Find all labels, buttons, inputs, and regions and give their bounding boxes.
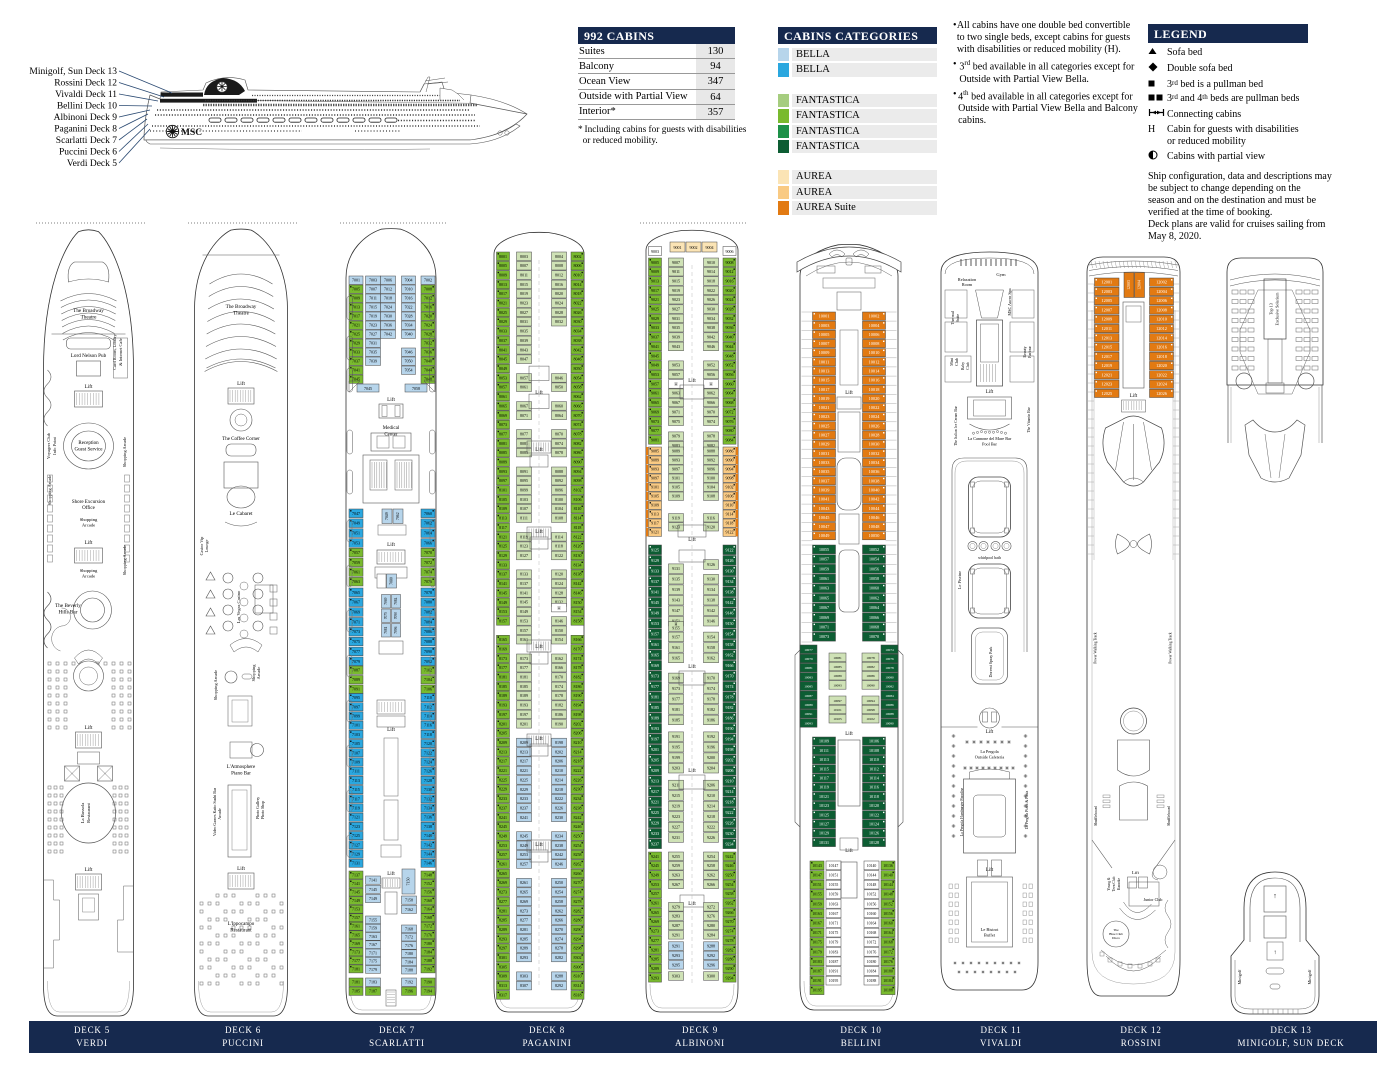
svg-text:10117: 10117 <box>819 776 829 781</box>
svg-text:10050: 10050 <box>869 533 880 538</box>
svg-text:9126: 9126 <box>707 562 715 567</box>
svg-text:9261: 9261 <box>651 901 659 906</box>
svg-text:7119: 7119 <box>352 806 360 811</box>
svg-text:8174: 8174 <box>574 656 582 661</box>
svg-text:10066: 10066 <box>869 615 879 620</box>
svg-text:7179: 7179 <box>369 967 377 972</box>
svg-text:Le Bistrot: Le Bistrot <box>981 927 999 932</box>
svg-text:8269: 8269 <box>499 880 507 885</box>
svg-text:7010: 7010 <box>405 287 413 292</box>
svg-text:9011: 9011 <box>672 269 680 274</box>
svg-text:9241: 9241 <box>651 854 659 859</box>
svg-text:7184: 7184 <box>405 959 413 964</box>
svg-text:Minigolf: Minigolf <box>1307 969 1312 984</box>
svg-text:7088: 7088 <box>424 639 432 644</box>
svg-text:7013: 7013 <box>352 305 360 310</box>
svg-text:9016: 9016 <box>726 279 734 284</box>
svg-text:9218: 9218 <box>707 814 715 819</box>
svg-text:8007: 8007 <box>520 263 528 268</box>
svg-text:8262: 8262 <box>574 862 582 867</box>
svg-text:10069: 10069 <box>819 615 829 620</box>
svg-text:9053: 9053 <box>672 363 680 368</box>
svg-text:10036: 10036 <box>869 469 881 474</box>
svg-text:9165: 9165 <box>651 652 659 657</box>
svg-text:10195: 10195 <box>829 979 839 983</box>
svg-text:8066: 8066 <box>574 403 582 408</box>
svg-text:10119: 10119 <box>819 785 829 790</box>
svg-text:8124: 8124 <box>555 581 563 586</box>
svg-text:10156: 10156 <box>867 902 877 906</box>
svg-text:8309: 8309 <box>499 974 507 979</box>
svg-text:12009: 12009 <box>1101 317 1112 322</box>
svg-text:7096: 7096 <box>394 626 398 633</box>
svg-text:9131: 9131 <box>672 566 680 571</box>
svg-text:8014: 8014 <box>574 282 582 287</box>
svg-text:8070: 8070 <box>555 431 563 436</box>
svg-text:9092: 9092 <box>707 458 715 463</box>
svg-text:7003: 7003 <box>369 278 377 283</box>
svg-text:9263: 9263 <box>672 873 680 878</box>
svg-text:7123: 7123 <box>352 824 360 829</box>
svg-text:9204: 9204 <box>707 766 715 771</box>
svg-text:Lift: Lift <box>688 379 696 384</box>
svg-text:10078: 10078 <box>885 666 894 670</box>
svg-text:7067: 7067 <box>352 600 360 605</box>
svg-text:9019: 9019 <box>672 288 680 293</box>
svg-text:Lift: Lift <box>986 868 994 873</box>
svg-text:7080: 7080 <box>390 577 394 585</box>
svg-text:8181: 8181 <box>520 675 528 680</box>
svg-text:9287: 9287 <box>672 923 680 928</box>
svg-text:8237: 8237 <box>520 806 528 811</box>
svg-text:9122: 9122 <box>726 547 734 552</box>
svg-text:Shopping: Shopping <box>80 568 98 573</box>
svg-text:9221: 9221 <box>651 799 659 804</box>
svg-text:7183: 7183 <box>369 980 377 985</box>
svg-text:8023: 8023 <box>520 301 528 306</box>
svg-text:9206: 9206 <box>707 783 715 788</box>
svg-text:9177: 9177 <box>651 684 659 689</box>
svg-text:9109: 9109 <box>672 494 680 499</box>
svg-text:7006: 7006 <box>384 278 392 283</box>
svg-text:7159: 7159 <box>369 926 377 931</box>
svg-text:7128: 7128 <box>424 778 432 783</box>
svg-text:9113: 9113 <box>651 512 659 517</box>
svg-text:8245: 8245 <box>520 834 528 839</box>
svg-text:8218: 8218 <box>555 787 563 792</box>
svg-text:9146: 9146 <box>707 619 715 624</box>
svg-text:7190: 7190 <box>424 980 432 985</box>
svg-text:8050: 8050 <box>574 366 582 371</box>
svg-text:8122: 8122 <box>555 553 563 558</box>
svg-text:8058: 8058 <box>574 385 582 390</box>
svg-text:Theatre: Theatre <box>233 311 250 317</box>
svg-text:8041: 8041 <box>499 347 507 352</box>
svg-text:7117: 7117 <box>352 796 360 801</box>
svg-text:9195: 9195 <box>672 745 680 750</box>
svg-text:9094: 9094 <box>726 467 734 472</box>
svg-text:9182: 9182 <box>707 707 715 712</box>
svg-text:10172: 10172 <box>883 950 893 954</box>
svg-text:9010: 9010 <box>707 260 715 265</box>
svg-text:7156: 7156 <box>424 890 432 895</box>
svg-text:8138: 8138 <box>574 572 582 577</box>
svg-text:9038: 9038 <box>707 325 715 330</box>
svg-text:Lift: Lift <box>387 872 395 877</box>
svg-text:7111: 7111 <box>352 769 360 774</box>
svg-text:9145: 9145 <box>651 600 659 605</box>
svg-text:7017: 7017 <box>352 314 360 319</box>
svg-text:9045: 9045 <box>651 353 659 358</box>
svg-text:9242: 9242 <box>726 854 734 859</box>
svg-text:10085: 10085 <box>804 685 813 689</box>
svg-text:7105: 7105 <box>352 741 360 746</box>
svg-text:8242: 8242 <box>574 815 582 820</box>
svg-text:Voyagers Club: Voyagers Club <box>46 432 51 459</box>
svg-text:10129: 10129 <box>819 831 829 836</box>
svg-text:10093: 10093 <box>804 721 813 725</box>
svg-text:8008: 8008 <box>555 263 563 268</box>
svg-text:9262: 9262 <box>726 901 734 906</box>
svg-text:7107: 7107 <box>352 750 360 755</box>
svg-text:9253: 9253 <box>651 882 659 887</box>
svg-text:10155: 10155 <box>812 893 822 897</box>
svg-text:8193: 8193 <box>499 703 507 708</box>
svg-text:9028: 9028 <box>726 307 734 312</box>
svg-text:7058: 7058 <box>412 386 420 391</box>
svg-text:7072: 7072 <box>424 560 432 565</box>
svg-text:9049: 9049 <box>651 363 659 368</box>
svg-text:10008: 10008 <box>869 341 880 346</box>
svg-text:8281: 8281 <box>499 908 507 913</box>
svg-text:7099: 7099 <box>352 714 360 719</box>
svg-text:La Pergola: La Pergola <box>980 749 998 754</box>
svg-text:8078: 8078 <box>555 450 563 455</box>
svg-text:9114: 9114 <box>726 512 734 517</box>
svg-text:8265: 8265 <box>520 890 528 895</box>
svg-text:7075: 7075 <box>384 612 388 619</box>
svg-text:10147: 10147 <box>812 874 822 878</box>
svg-text:8099: 8099 <box>520 488 528 493</box>
svg-text:7127: 7127 <box>352 842 360 847</box>
svg-text:8226: 8226 <box>555 806 563 811</box>
svg-text:Restaurant: Restaurant <box>230 929 252 934</box>
svg-text:9189: 9189 <box>651 715 659 720</box>
svg-text:12005: 12005 <box>1101 298 1112 303</box>
svg-text:9138: 9138 <box>707 598 715 603</box>
svg-text:8021: 8021 <box>499 301 507 306</box>
svg-text:9075: 9075 <box>672 419 680 424</box>
svg-text:7057: 7057 <box>352 550 360 555</box>
svg-text:7125: 7125 <box>352 833 360 838</box>
svg-text:8253: 8253 <box>520 852 528 857</box>
svg-text:9203: 9203 <box>672 766 680 771</box>
svg-text:9121: 9121 <box>651 530 659 535</box>
svg-text:10030: 10030 <box>869 442 880 447</box>
svg-text:Hills Bar: Hills Bar <box>59 610 78 616</box>
svg-text:8120: 8120 <box>555 572 563 577</box>
svg-text:8097: 8097 <box>499 478 507 483</box>
svg-text:9182: 9182 <box>726 705 734 710</box>
svg-text:7009: 7009 <box>352 296 360 301</box>
svg-text:8318: 8318 <box>574 992 582 997</box>
svg-text:10037: 10037 <box>819 478 831 483</box>
svg-text:12016: 12016 <box>1156 345 1168 350</box>
svg-text:9104: 9104 <box>707 485 715 490</box>
svg-text:9265: 9265 <box>651 910 659 915</box>
svg-text:10105: 10105 <box>833 717 842 721</box>
svg-text:9001: 9001 <box>674 245 682 250</box>
svg-text:9291: 9291 <box>672 932 680 937</box>
svg-text:10140: 10140 <box>867 864 877 868</box>
svg-text:10062: 10062 <box>869 595 879 600</box>
svg-text:10168: 10168 <box>867 931 877 935</box>
svg-text:The Broadway: The Broadway <box>226 304 257 310</box>
svg-text:10171: 10171 <box>829 922 839 926</box>
svg-text:9020: 9020 <box>726 288 734 293</box>
svg-text:9173: 9173 <box>672 686 680 691</box>
svg-text:9289: 9289 <box>651 966 659 971</box>
svg-text:8111: 8111 <box>520 516 528 521</box>
svg-text:8165: 8165 <box>499 637 507 642</box>
svg-text:10106: 10106 <box>869 739 879 744</box>
svg-text:8122: 8122 <box>574 534 582 539</box>
svg-text:Verdi Deck 5: Verdi Deck 5 <box>67 159 117 169</box>
svg-text:7087: 7087 <box>352 668 360 673</box>
svg-text:10022: 10022 <box>869 405 880 410</box>
svg-text:10093: 10093 <box>833 683 842 687</box>
svg-text:7053: 7053 <box>352 541 360 546</box>
svg-text:7029: 7029 <box>352 341 360 346</box>
svg-text:10004: 10004 <box>869 323 881 328</box>
svg-text:7152: 7152 <box>424 881 432 886</box>
svg-text:9030: 9030 <box>707 307 715 312</box>
svg-text:10123: 10123 <box>819 803 829 808</box>
svg-text:10109: 10109 <box>819 739 829 744</box>
svg-text:9100: 9100 <box>707 476 715 481</box>
svg-text:8150: 8150 <box>555 628 563 633</box>
svg-text:9258: 9258 <box>726 891 734 896</box>
svg-text:10023: 10023 <box>819 414 830 419</box>
svg-text:Info Point: Info Point <box>52 436 57 454</box>
svg-text:10042: 10042 <box>869 497 880 502</box>
svg-text:10063: 10063 <box>819 586 829 591</box>
svg-text:8162: 8162 <box>555 656 563 661</box>
svg-text:7192: 7192 <box>424 966 432 971</box>
svg-text:7069: 7069 <box>352 610 360 615</box>
svg-text:8039: 8039 <box>520 338 528 343</box>
svg-text:9274: 9274 <box>726 929 734 934</box>
svg-text:7129: 7129 <box>352 852 360 857</box>
svg-text:9084: 9084 <box>726 437 734 442</box>
svg-text:Lift: Lift <box>535 530 543 535</box>
svg-text:7012: 7012 <box>384 287 392 292</box>
svg-text:9024: 9024 <box>726 297 734 302</box>
svg-text:9086: 9086 <box>726 449 734 454</box>
svg-text:8222: 8222 <box>555 796 563 801</box>
svg-text:9134: 9134 <box>726 579 734 584</box>
svg-text:8186: 8186 <box>555 712 563 717</box>
svg-text:7022: 7022 <box>405 305 413 310</box>
svg-text:8170: 8170 <box>555 675 563 680</box>
svg-text:8011: 8011 <box>520 273 528 278</box>
svg-text:8273: 8273 <box>499 890 507 895</box>
svg-text:10031: 10031 <box>819 451 830 456</box>
svg-text:8202: 8202 <box>555 749 563 754</box>
svg-text:9162: 9162 <box>707 655 715 660</box>
svg-text:8149: 8149 <box>499 600 507 605</box>
svg-text:Scarlatti Deck 7: Scarlatti Deck 7 <box>56 136 117 146</box>
svg-text:9259: 9259 <box>672 863 680 868</box>
svg-text:8214: 8214 <box>574 749 582 754</box>
svg-text:8241: 8241 <box>520 815 528 820</box>
svg-text:7076: 7076 <box>424 579 432 584</box>
svg-text:9194: 9194 <box>726 736 734 741</box>
svg-text:10003: 10003 <box>819 323 830 328</box>
svg-text:10015: 10015 <box>819 378 830 383</box>
svg-text:7051: 7051 <box>352 531 360 536</box>
svg-text:7047: 7047 <box>352 511 360 516</box>
svg-text:La Bussola: La Bussola <box>80 803 85 824</box>
svg-text:7167: 7167 <box>369 942 377 947</box>
svg-text:9085: 9085 <box>651 449 659 454</box>
svg-text:7090: 7090 <box>394 612 398 619</box>
svg-text:7157: 7157 <box>352 915 360 920</box>
svg-text:9237: 9237 <box>651 841 659 846</box>
svg-text:9101: 9101 <box>651 485 659 490</box>
svg-text:9032: 9032 <box>726 316 734 321</box>
svg-text:9138: 9138 <box>726 589 734 594</box>
svg-text:10180: 10180 <box>883 970 893 974</box>
svg-text:8077: 8077 <box>520 431 528 436</box>
svg-text:8253: 8253 <box>499 843 507 848</box>
svg-text:8217: 8217 <box>499 759 507 764</box>
svg-text:Doremi Spray Park: Doremi Spray Park <box>988 647 993 678</box>
svg-text:9063: 9063 <box>672 391 680 396</box>
svg-text:Lift: Lift <box>535 448 543 453</box>
svg-text:10079: 10079 <box>804 657 813 661</box>
svg-text:9279: 9279 <box>672 904 680 909</box>
svg-text:8095: 8095 <box>520 478 528 483</box>
svg-text:7030: 7030 <box>384 314 392 319</box>
svg-text:Bellini Deck 10: Bellini Deck 10 <box>57 102 117 112</box>
svg-text:8190: 8190 <box>574 693 582 698</box>
svg-text:9143: 9143 <box>672 598 680 603</box>
svg-text:Lift: Lift <box>986 730 994 735</box>
svg-text:10155: 10155 <box>829 883 839 887</box>
svg-text:12010: 12010 <box>1156 317 1167 322</box>
svg-text:7109: 7109 <box>352 760 360 765</box>
svg-text:7016: 7016 <box>405 296 413 301</box>
svg-text:10124: 10124 <box>869 822 879 827</box>
svg-text:8003: 8003 <box>520 254 528 259</box>
svg-text:9154: 9154 <box>726 631 734 636</box>
svg-text:7007: 7007 <box>369 287 377 292</box>
svg-text:12015: 12015 <box>1101 345 1112 350</box>
svg-text:Lift: Lift <box>688 902 696 907</box>
svg-text:9125: 9125 <box>651 547 659 552</box>
svg-text:7162: 7162 <box>405 907 413 912</box>
svg-text:7027: 7027 <box>369 332 377 337</box>
svg-text:8022: 8022 <box>574 301 582 306</box>
svg-text:9249: 9249 <box>651 873 659 878</box>
svg-text:7073: 7073 <box>352 629 360 634</box>
svg-text:9173: 9173 <box>651 673 659 678</box>
svg-text:9290: 9290 <box>726 966 734 971</box>
svg-text:10188: 10188 <box>867 979 877 983</box>
svg-text:8274: 8274 <box>574 890 582 895</box>
svg-text:8078: 8078 <box>574 431 582 436</box>
svg-text:8189: 8189 <box>499 693 507 698</box>
svg-text:8067: 8067 <box>520 403 528 408</box>
svg-text:8282: 8282 <box>555 955 563 960</box>
svg-text:8286: 8286 <box>574 918 582 923</box>
svg-text:10179: 10179 <box>829 941 839 945</box>
svg-text:9254: 9254 <box>726 882 734 887</box>
svg-text:7142: 7142 <box>424 842 432 847</box>
svg-text:9193: 9193 <box>651 726 659 731</box>
svg-text:8126: 8126 <box>574 544 582 549</box>
svg-text:8017: 8017 <box>499 291 507 296</box>
svg-text:8016: 8016 <box>555 282 563 287</box>
svg-text:7090: 7090 <box>424 649 432 654</box>
svg-text:8166: 8166 <box>574 637 582 642</box>
svg-text:Power Walking Track: Power Walking Track <box>1169 632 1173 663</box>
svg-text:7169: 7169 <box>352 941 360 946</box>
svg-text:8274: 8274 <box>555 936 563 941</box>
svg-text:9149: 9149 <box>651 610 659 615</box>
svg-text:8118: 8118 <box>555 544 563 549</box>
svg-text:9133: 9133 <box>651 568 659 573</box>
svg-text:10055: 10055 <box>819 547 829 552</box>
svg-text:9288: 9288 <box>707 944 715 949</box>
svg-text:Lift: Lift <box>535 645 543 650</box>
svg-text:L'Atmosphere: L'Atmosphere <box>227 765 256 770</box>
svg-text:10002: 10002 <box>869 314 880 319</box>
svg-text:9061: 9061 <box>651 391 659 396</box>
svg-text:8141: 8141 <box>499 581 507 586</box>
svg-text:10087: 10087 <box>804 694 813 698</box>
svg-text:8225: 8225 <box>499 777 507 782</box>
svg-text:9137: 9137 <box>651 579 659 584</box>
svg-text:9283: 9283 <box>672 914 680 919</box>
svg-text:10191: 10191 <box>812 979 822 983</box>
svg-text:8070: 8070 <box>574 413 582 418</box>
svg-text:10043: 10043 <box>819 506 830 511</box>
svg-text:9245: 9245 <box>651 863 659 868</box>
svg-text:9070: 9070 <box>707 409 715 414</box>
svg-text:8085: 8085 <box>499 450 507 455</box>
svg-text:8010: 8010 <box>574 273 582 278</box>
svg-text:8181: 8181 <box>499 675 507 680</box>
svg-text:10064: 10064 <box>869 605 879 610</box>
svg-text:7032: 7032 <box>424 341 432 346</box>
svg-text:10163: 10163 <box>812 912 822 916</box>
svg-text:9257: 9257 <box>651 891 659 896</box>
svg-text:8082: 8082 <box>574 441 582 446</box>
svg-text:10014: 10014 <box>869 369 881 374</box>
svg-text:8238: 8238 <box>555 843 563 848</box>
svg-text:8290: 8290 <box>574 927 582 932</box>
svg-text:7078: 7078 <box>424 590 432 595</box>
svg-text:9303: 9303 <box>672 974 680 979</box>
svg-text:7091: 7091 <box>352 687 360 692</box>
svg-text:9090: 9090 <box>726 458 734 463</box>
svg-text:10167: 10167 <box>812 922 822 926</box>
svg-text:9202: 9202 <box>726 757 734 762</box>
svg-text:10122: 10122 <box>869 812 879 817</box>
svg-text:9005: 9005 <box>651 260 659 265</box>
